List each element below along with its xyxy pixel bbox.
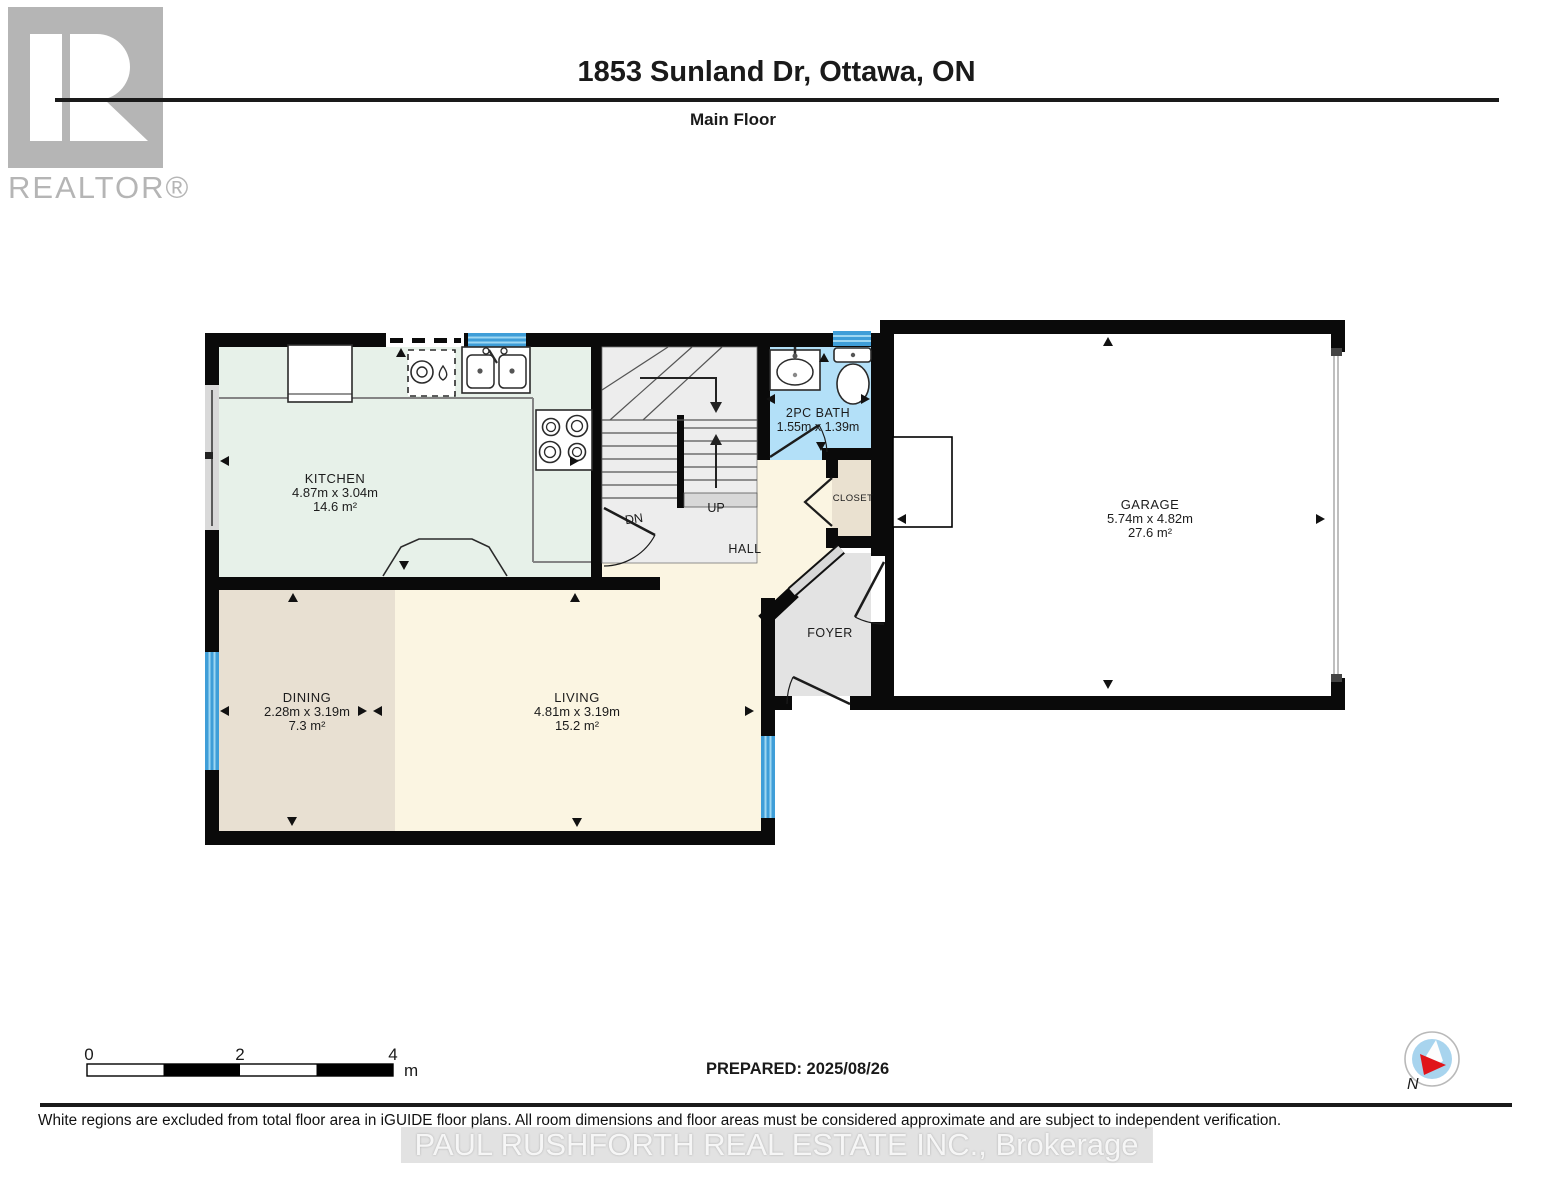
stairs-down-label: DN (624, 511, 644, 527)
garage-label: GARAGE 5.74m x 4.82m 27.6 m² (1107, 498, 1193, 540)
kitchen-label: KITCHEN 4.87m x 3.04m 14.6 m² (292, 472, 378, 514)
prepared-date: PREPARED: 2025/08/26 (706, 1060, 889, 1079)
floorplan-drawing (0, 0, 1553, 1200)
floorplan-page: REALTOR® 1853 Sunland Dr, Ottawa, ON Mai… (0, 0, 1553, 1200)
garage-area: 27.6 m² (1107, 526, 1193, 540)
garage-mandoor-recess (893, 437, 952, 527)
living-window (761, 736, 775, 818)
scale-bar (87, 1064, 393, 1076)
dining-label: DINING 2.28m x 3.19m 7.3 m² (264, 691, 350, 733)
living-label: LIVING 4.81m x 3.19m 15.2 m² (534, 691, 620, 733)
dining-name: DINING (264, 691, 350, 705)
dining-area: 7.3 m² (264, 719, 350, 733)
kitchen-wall-dashes (386, 333, 464, 347)
living-name: LIVING (534, 691, 620, 705)
bath-sink-icon (770, 347, 820, 390)
brokerage-watermark: PAUL RUSHFORTH REAL ESTATE INC., Brokera… (400, 1127, 1152, 1163)
scale-tick-4: 4 (388, 1045, 397, 1065)
garage-dims: 5.74m x 4.82m (1107, 512, 1193, 526)
stove-icon (536, 410, 592, 470)
bath-window (833, 331, 871, 346)
scale-unit: m (404, 1061, 418, 1081)
scale-tick-2: 2 (235, 1045, 244, 1065)
closet-label: CLOSET (833, 493, 873, 504)
dishwasher-icon (408, 350, 455, 396)
dining-dims: 2.28m x 3.19m (264, 705, 350, 719)
compass-north-label: N (1407, 1076, 1419, 1094)
kitchen-name: KITCHEN (292, 472, 378, 486)
footer-divider (40, 1103, 1512, 1107)
kitchen-window (468, 333, 526, 347)
kitchen-dims: 4.87m x 3.04m (292, 486, 378, 500)
bath-name: 2PC BATH (777, 406, 860, 420)
bath-dims: 1.55m x 1.39m (777, 420, 860, 434)
living-area: 15.2 m² (534, 719, 620, 733)
entry-opening (792, 696, 850, 710)
foyer-label: FOYER (807, 626, 853, 640)
bath-label: 2PC BATH 1.55m x 1.39m (777, 406, 860, 434)
scale-tick-0: 0 (84, 1045, 93, 1065)
garage-name: GARAGE (1107, 498, 1193, 512)
toilet-icon (834, 348, 871, 404)
living-dims: 4.81m x 3.19m (534, 705, 620, 719)
dining-window (205, 652, 219, 770)
kitchen-patio-door (205, 385, 219, 530)
kitchen-area: 14.6 m² (292, 500, 378, 514)
fridge-icon (288, 345, 352, 402)
hall-label: HALL (728, 542, 761, 556)
double-sink-icon (462, 347, 530, 393)
stairs-up-label: UP (707, 501, 724, 515)
